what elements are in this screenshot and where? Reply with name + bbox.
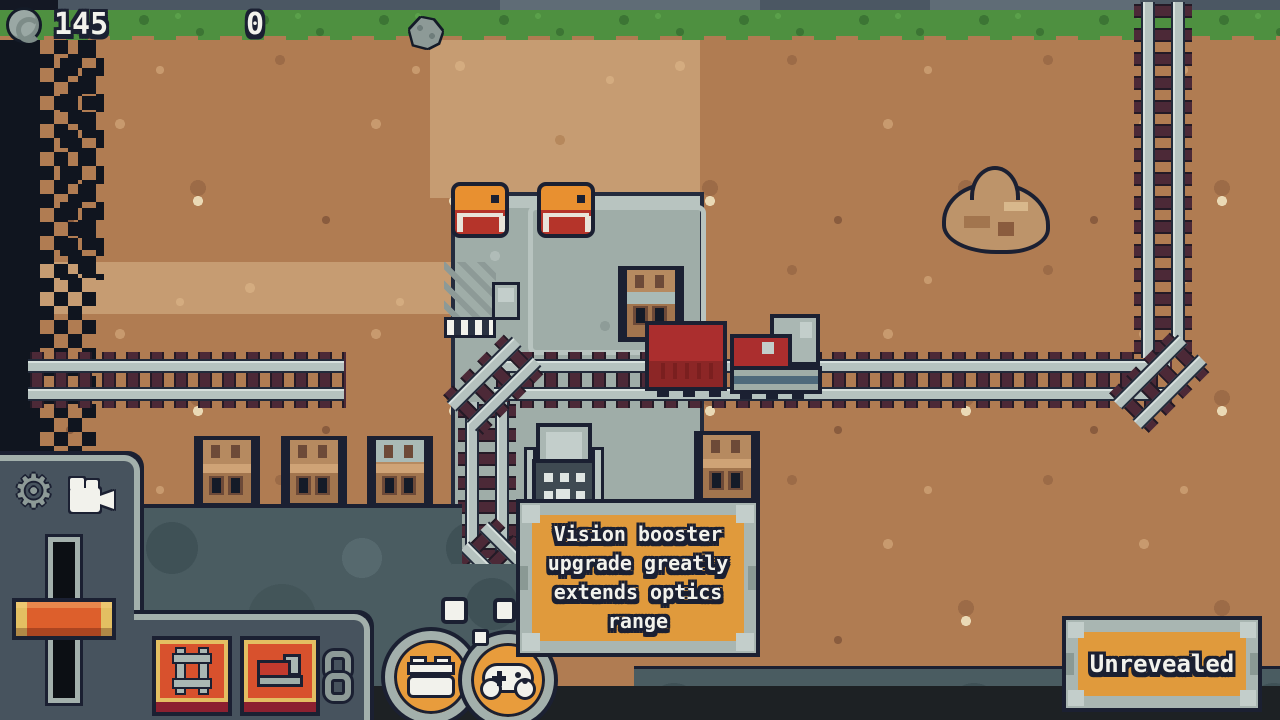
ore-counter: 0 [246,8,264,42]
build-track-button[interactable] [152,636,232,716]
rail [494,359,1170,373]
rail [1141,2,1155,358]
crate-building [367,436,433,508]
railroad-track-mainline [492,352,1172,408]
train-wagon[interactable] [645,321,727,391]
rail [1171,2,1185,358]
rail [28,387,344,401]
buy-train-button[interactable] [240,636,320,716]
upgrade-tooltip: Vision booster upgrade greatly extends o… [516,499,760,657]
chain-link-icon[interactable] [325,673,351,701]
railroad-track-right-vertical [1134,0,1192,360]
crossing-signal-box [492,282,520,320]
notification-dot [472,629,489,646]
game-screen: 145 0 ⚙ [0,0,1280,720]
tooltip-line: Vision booster [520,520,756,549]
coin-icon [6,7,42,43]
crate-building [694,431,760,503]
gear-icon[interactable]: ⚙ [13,468,54,514]
gamepad-icon [485,664,531,696]
crate-building [194,436,260,508]
tooltip-line: upgrade greatly [520,549,756,578]
ore-rock-icon [205,9,237,39]
hidden-object-marker [441,597,468,624]
crossing-hatch [444,262,496,320]
train-locomotive[interactable] [730,314,826,400]
tooltip-line: extends optics [520,578,756,607]
road-vertical [430,40,700,198]
map-edge-dither [60,40,104,280]
coin-counter: 145 [54,8,108,42]
hidden-object-marker [493,598,516,623]
crossing-barrier [444,317,496,338]
crate-building [281,436,347,508]
railroad-track-segment-left [26,352,346,408]
tooltip-text: Vision booster upgrade greatly extends o… [520,520,756,636]
grass-strip [0,10,1280,42]
camera-icon[interactable] [70,478,116,516]
train[interactable] [645,314,830,410]
unrevealed-region-label: Unrevealed [1062,616,1262,712]
railroad-track-icon [174,649,210,693]
vehicle-truck [451,182,509,238]
vehicle-truck [537,182,595,238]
tooltip-line: range [520,607,756,636]
unrevealed-text: Unrevealed [1066,650,1258,678]
rail [494,387,1170,401]
zoom-slider-handle[interactable] [12,598,116,640]
rail [28,359,344,373]
train-icon [257,654,303,688]
locomotive-chassis [730,366,822,394]
workbench-icon [408,657,454,697]
